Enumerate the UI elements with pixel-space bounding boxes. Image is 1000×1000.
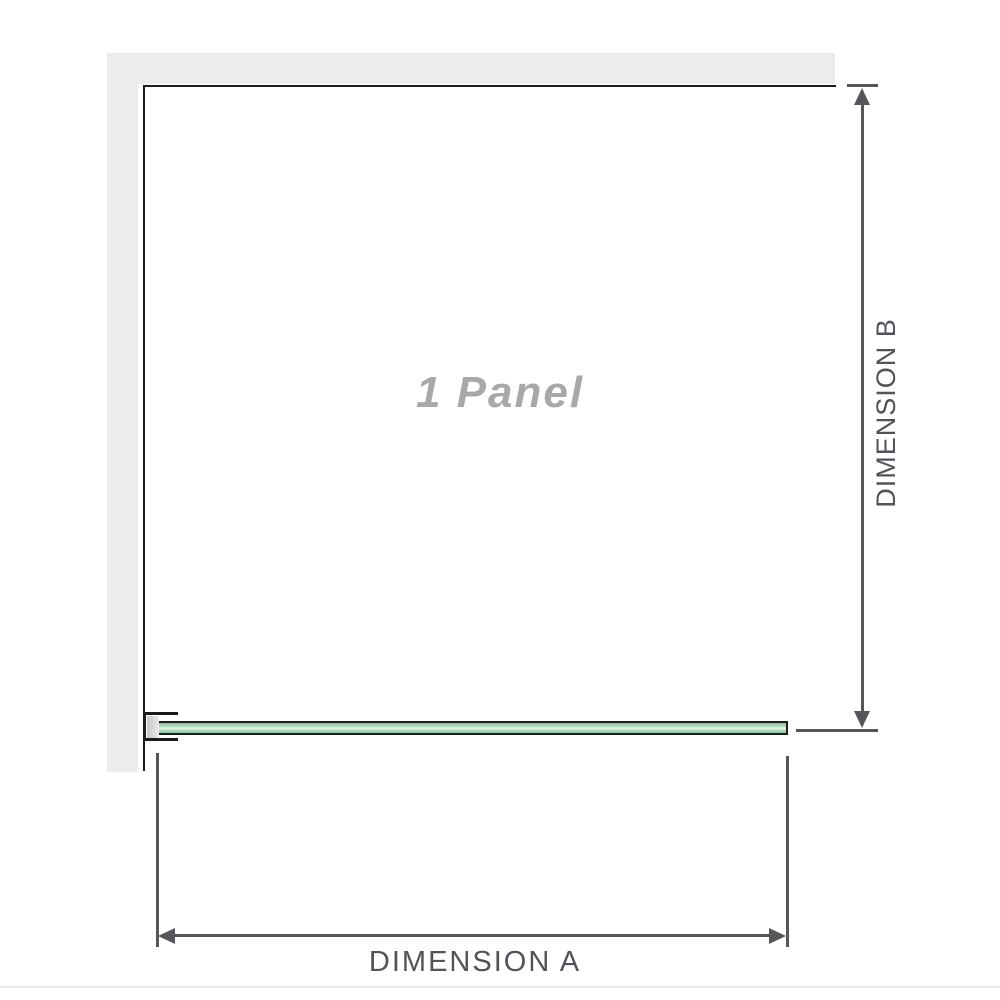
dimension-b-line xyxy=(861,98,864,716)
wall-segment-left xyxy=(107,53,138,772)
dimension-a-line xyxy=(168,934,776,937)
dimension-b-label: DIMENSION B xyxy=(872,293,900,533)
dimension-b-cap-bottom xyxy=(796,729,878,732)
arrow-left-icon xyxy=(158,928,175,944)
panel-dimension-diagram: 1 Panel DIMENSION B DIMENSION A xyxy=(0,0,1000,1000)
bottom-separator xyxy=(0,986,1000,988)
panel-border-top xyxy=(143,85,836,87)
arrow-up-icon xyxy=(854,88,870,105)
panel-label: 1 Panel xyxy=(330,368,670,418)
dimension-a-label: DIMENSION A xyxy=(325,946,625,979)
wall-bracket xyxy=(143,712,178,741)
arrow-right-icon xyxy=(769,928,786,944)
dimension-a-extension-left xyxy=(156,753,159,947)
arrow-down-icon xyxy=(854,711,870,728)
panel-border-left xyxy=(143,85,145,771)
wall-segment-top xyxy=(107,53,835,84)
glass-panel xyxy=(157,721,788,735)
dimension-a-extension-right xyxy=(786,756,789,947)
dimension-b-cap-top xyxy=(847,84,878,87)
